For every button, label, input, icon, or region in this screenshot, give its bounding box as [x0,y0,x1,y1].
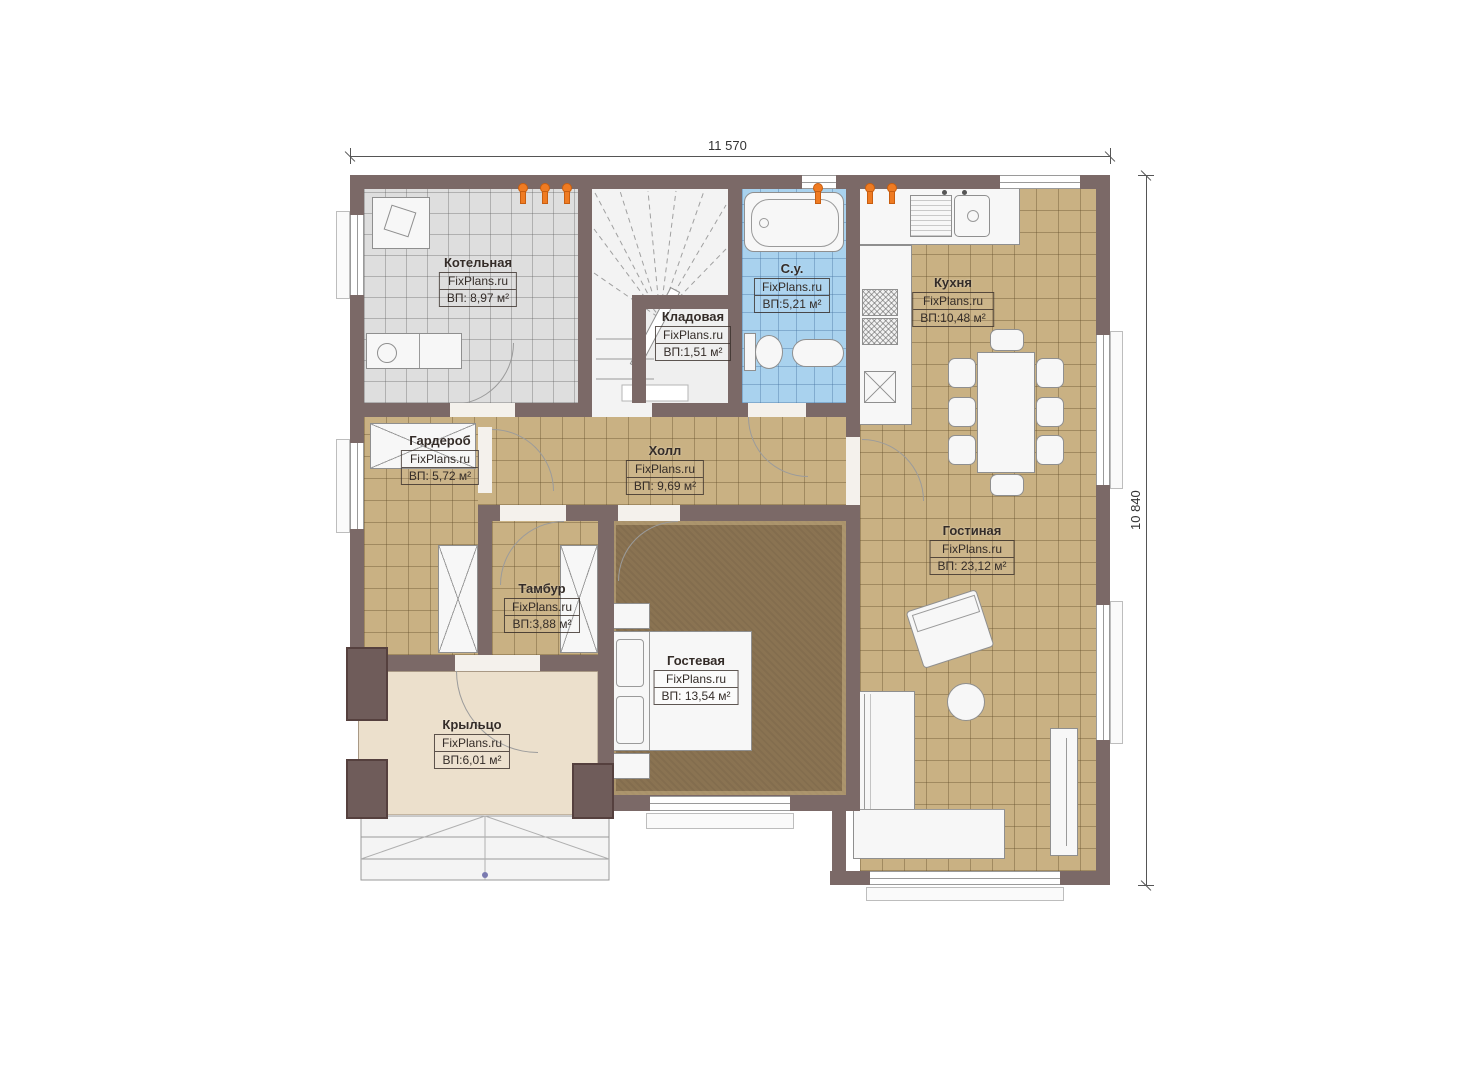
room-brand: FixPlans.ru [435,735,509,751]
marker-stem [564,191,570,204]
heating-marker [887,183,897,204]
sofa-section-chaise [853,809,1005,859]
room-name: Тамбур [504,581,580,596]
door-opening [500,505,566,521]
wall-storage-top [632,295,740,309]
door-opening [846,437,860,505]
room-name: Гардероб [401,433,479,448]
utility-counter [366,333,462,369]
bed-pillow [616,696,644,744]
window [350,443,364,529]
room-name: Крыльцо [434,717,510,732]
room-label-kitchen: Кухня FixPlans.ru ВП:10,48 м² [912,275,994,327]
window-sill [1110,331,1123,489]
door-opening-entrance [455,655,540,671]
dimension-ext [1138,175,1154,176]
boiler-symbol [384,205,417,238]
marker-stem [815,191,821,204]
room-brand: FixPlans.ru [656,327,730,343]
room-label-living: Гостиная FixPlans.ru ВП: 23,12 м² [930,523,1015,575]
room-area: ВП:6,01 м² [435,751,509,768]
heating-marker [865,183,875,204]
room-label-boiler: Котельная FixPlans.ru ВП: 8,97 м² [439,255,517,307]
floor-plan: Котельная FixPlans.ru ВП: 8,97 м² Кладов… [350,175,1110,885]
room-name: Гостевая [654,653,739,668]
bed-blanket-line [649,632,650,750]
stove-burner [862,318,898,345]
room-label-bathroom: С.у. FixPlans.ru ВП:5,21 м² [754,261,830,313]
wall-corridor-vestibule [478,521,492,655]
wall-top [350,175,1110,189]
dining-chair [948,397,976,427]
room-area: ВП:1,51 м² [656,343,730,360]
window [350,215,364,295]
room-area: ВП:10,48 м² [913,309,993,326]
room-brand: FixPlans.ru [402,451,478,467]
room-label-vestibule: Тамбур FixPlans.ru ВП:3,88 м² [504,581,580,633]
boiler-unit [372,197,430,249]
dining-table [977,352,1035,473]
room-area: ВП:5,21 м² [755,295,829,312]
room-area: ВП: 13,54 м² [655,687,738,704]
window [1000,175,1080,189]
dining-chair [1036,358,1064,388]
heating-marker [518,183,528,204]
wall-under-stairs [652,403,748,417]
wall-under-boiler-a [364,403,450,417]
window-sill [646,813,794,829]
porch-column [346,759,388,819]
stove-burner [862,289,898,316]
dimension-ext [350,148,351,164]
dining-chair [1036,435,1064,465]
wall-storage-left [632,295,646,417]
dining-chair [948,435,976,465]
wall-under-bath [806,403,846,417]
utility-sink [377,343,397,363]
window [870,871,1060,885]
window [1096,605,1110,740]
dimension-line-top [350,156,1110,157]
room-brand: FixPlans.ru [931,541,1014,557]
dining-chair [990,474,1024,496]
wall-guest-right [846,505,860,811]
window-sill [336,439,350,533]
faucet-dot [942,190,947,195]
counter-divider [419,334,420,368]
dining-chair [1036,397,1064,427]
bed-pillow [616,639,644,687]
corridor-closet [438,545,478,653]
window [1096,335,1110,485]
door-opening [450,403,515,417]
wall-porch-top-b [540,655,598,671]
dining-chair [948,358,976,388]
wall-bath-kitchen [846,189,860,437]
heating-marker [813,183,823,204]
window-sill [336,211,350,299]
bathtub [744,192,844,252]
nightstand [612,603,650,629]
room-brand: FixPlans.ru [655,671,738,687]
room-label-guest: Гостевая FixPlans.ru ВП: 13,54 м² [654,653,739,705]
room-label-porch: Крыльцо FixPlans.ru ВП:6,01 м² [434,717,510,769]
wall-hall-bottom-a [478,505,500,521]
wall-hall-bottom-c [680,505,846,521]
bathtub-drain [759,218,769,228]
room-brand: FixPlans.ru [505,599,579,615]
room-brand: FixPlans.ru [913,293,993,309]
dimension-ext [1138,885,1154,886]
window [650,796,790,811]
radiator [1050,728,1078,856]
door-opening [592,403,652,417]
window-sill [866,887,1064,901]
toilet-bowl [755,335,783,369]
wall-hall-bottom-b [566,505,618,521]
porch-steps [360,815,610,883]
room-name: С.у. [754,261,830,276]
wall-under-boiler-b [515,403,592,417]
marker-stem [867,191,873,204]
room-area: ВП:3,88 м² [505,615,579,632]
room-area: ВП: 8,97 м² [440,289,516,306]
dining-chair [990,329,1024,351]
dimension-line-right [1146,175,1147,885]
room-name: Гостиная [930,523,1015,538]
room-name: Холл [626,443,704,458]
marker-stem [889,191,895,204]
room-label-wardrobe: Гардероб FixPlans.ru ВП: 5,72 м² [401,433,479,485]
marker-stem [520,191,526,204]
room-label-hall: Холл FixPlans.ru ВП: 9,69 м² [626,443,704,495]
dimension-ext [1110,148,1111,164]
nightstand [612,753,650,779]
room-area: ВП: 5,72 м² [402,467,478,484]
heating-marker [540,183,550,204]
room-brand: FixPlans.ru [440,273,516,289]
room-brand: FixPlans.ru [755,279,829,295]
room-name: Кладовая [655,309,731,324]
wall-right [1096,175,1110,885]
kitchen-sink-drainboard [910,195,952,237]
heating-marker [562,183,572,204]
kitchen-sink-basin [954,195,990,237]
room-area: ВП: 23,12 м² [931,557,1014,574]
window-sill [1110,601,1123,744]
room-name: Котельная [439,255,517,270]
porch-column [572,763,614,819]
porch-column [346,647,388,721]
marker-stem [542,191,548,204]
faucet-dot [962,190,967,195]
room-name: Кухня [912,275,994,290]
room-area: ВП: 9,69 м² [627,477,703,494]
coffee-table [947,683,985,721]
room-brand: FixPlans.ru [627,461,703,477]
sink-drain [967,210,979,222]
door-opening [478,427,492,493]
door-opening [748,403,806,417]
bathroom-sink [792,339,844,367]
room-label-storage: Кладовая FixPlans.ru ВП:1,51 м² [655,309,731,361]
door-opening [618,505,680,521]
dimension-right-label: 10 840 [1128,490,1143,530]
dishwasher [864,371,896,403]
wall-boiler-stairs [578,189,592,417]
dimension-top-label: 11 570 [708,138,747,153]
